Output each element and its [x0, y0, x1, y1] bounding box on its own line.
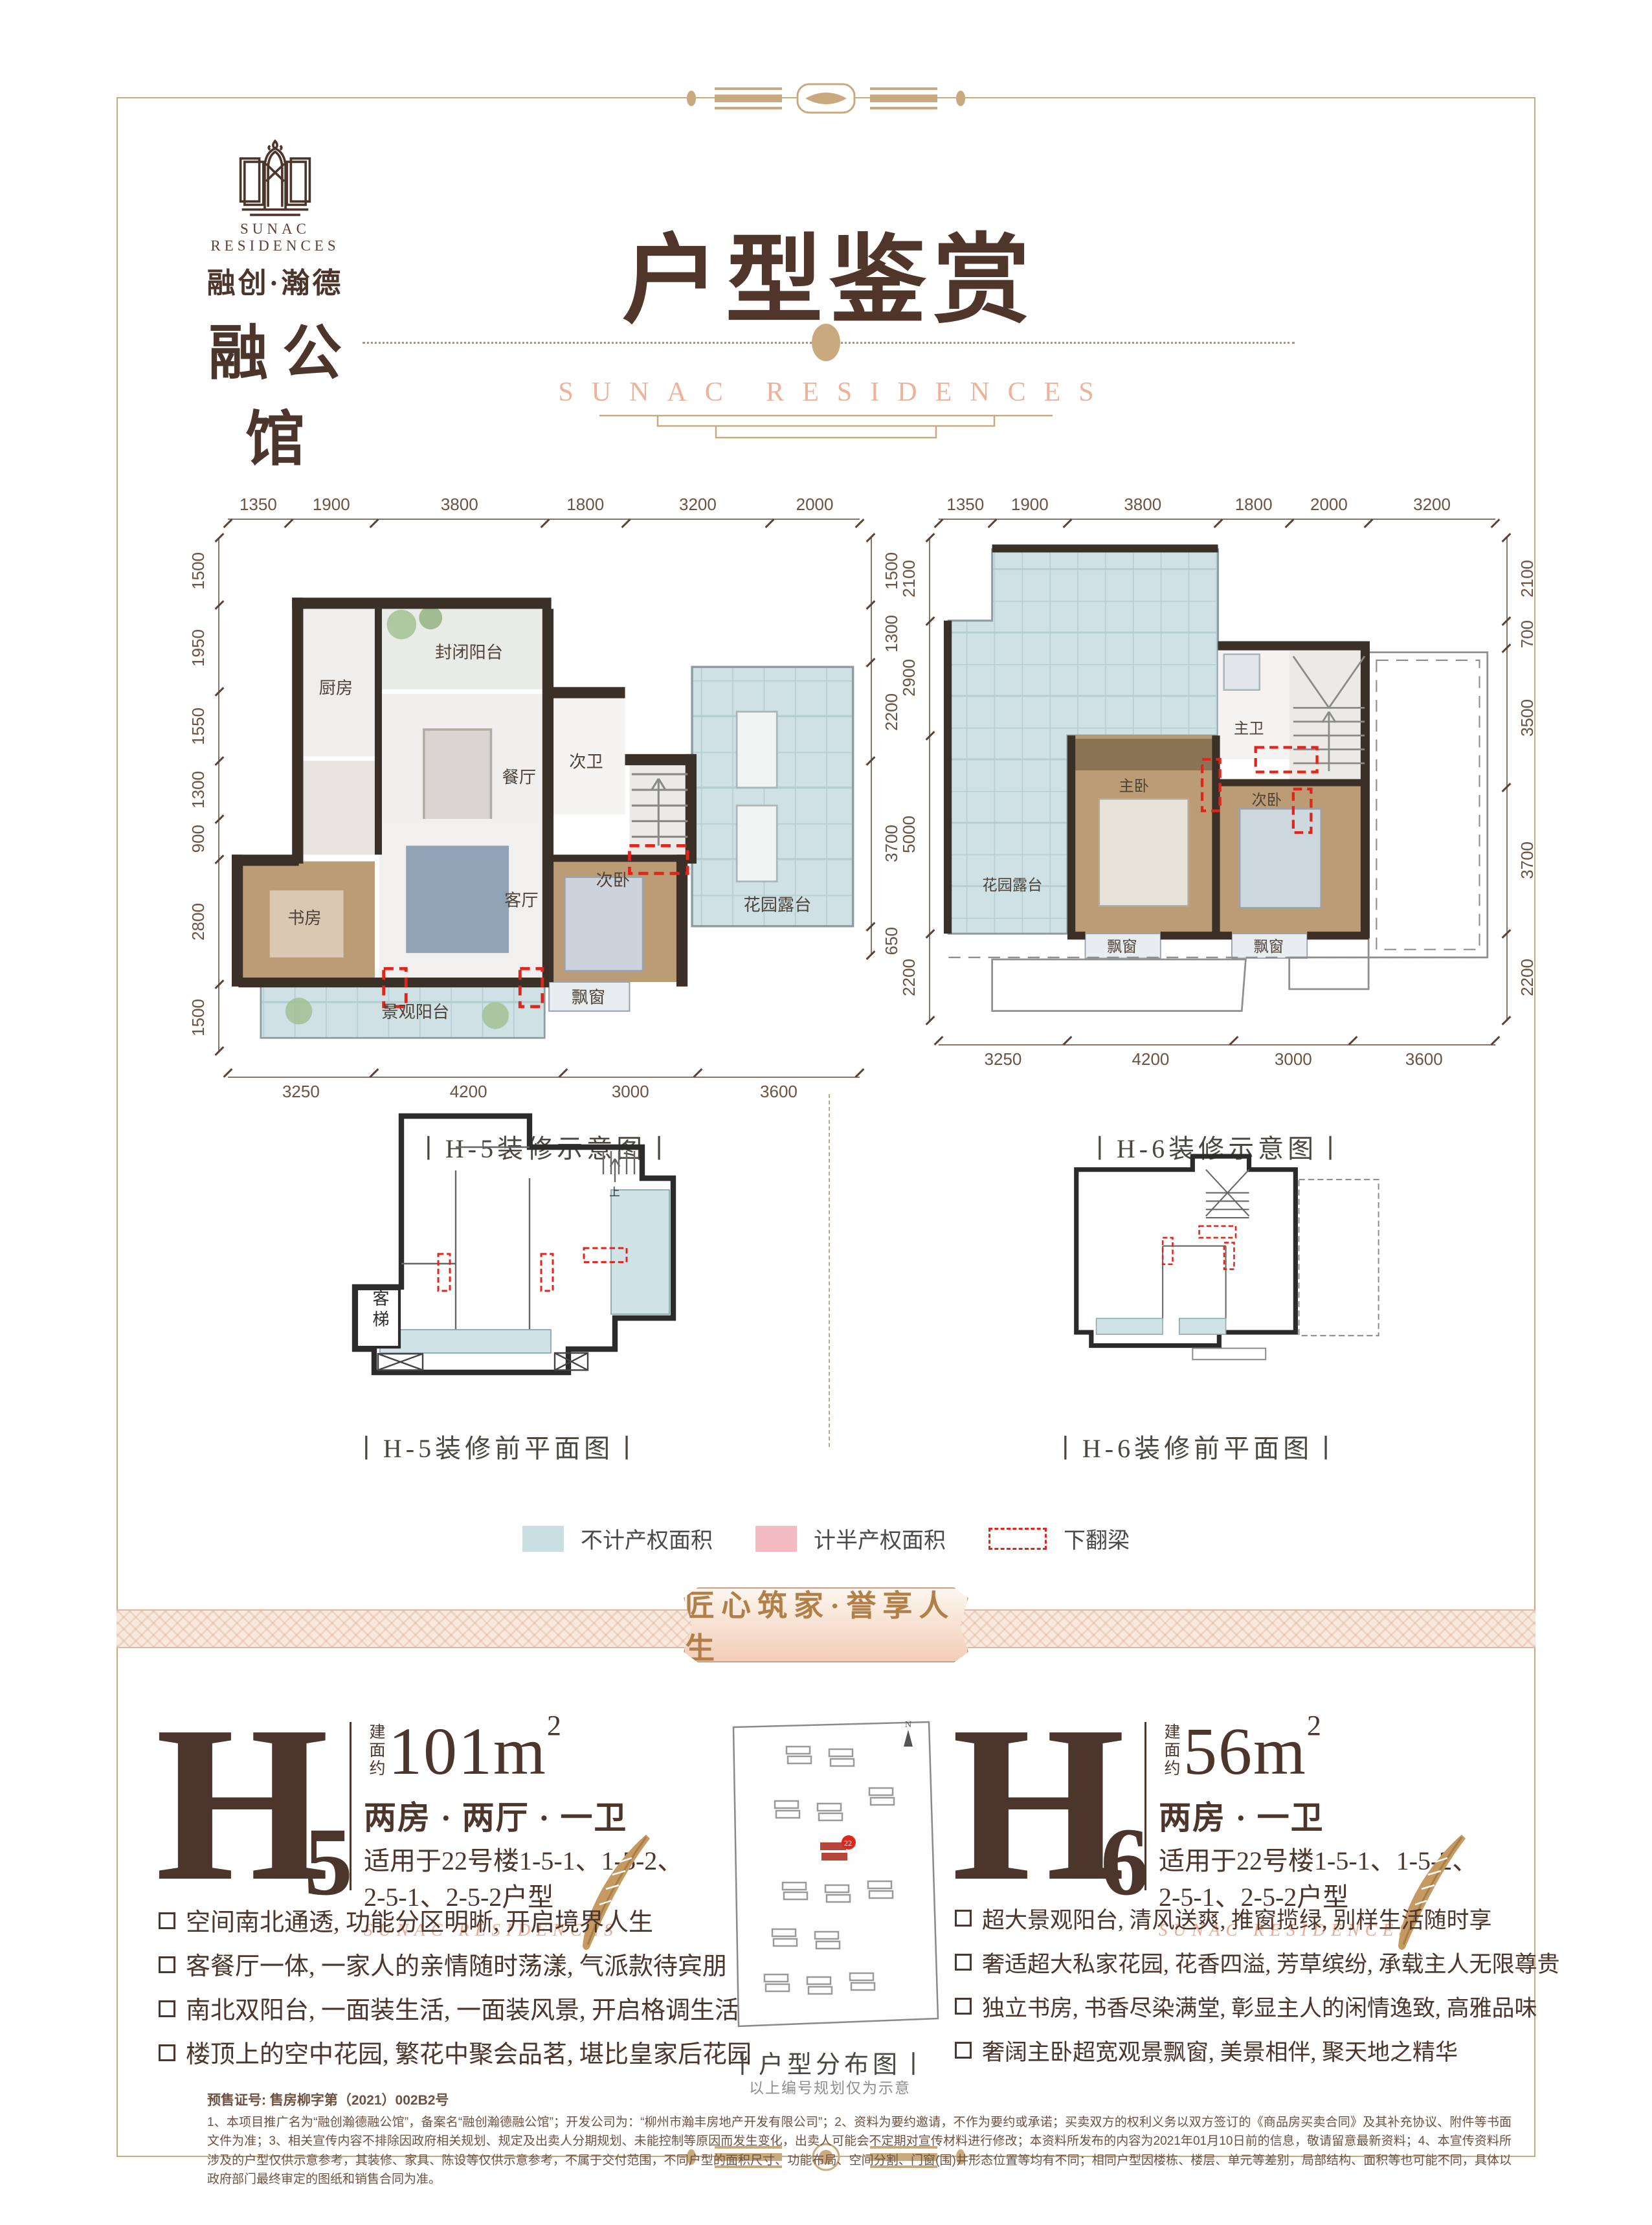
dimension-segment: 900: [189, 819, 229, 859]
h6-pre-floorplan: [1007, 1130, 1389, 1379]
h6-area: 56m2: [1183, 1709, 1323, 1790]
h5-room-study: 书房: [287, 909, 321, 928]
h5-room-kitchen: 厨房: [319, 679, 353, 698]
legend-no-property-label: 不计产权面积: [581, 1523, 713, 1554]
h5-pre-floorplan: 上: [304, 1101, 693, 1384]
dimension-segment: 3000: [563, 1067, 698, 1104]
dimension-segment: 3700: [1497, 787, 1537, 934]
logo-name-en: SUNAC RESIDENCES: [175, 221, 375, 254]
siteplan-caption: 丨户型分布图丨: [730, 2044, 930, 2080]
dimension-segment: 2200: [1497, 934, 1537, 1021]
h5-dims-right: 1500130022003700650: [861, 537, 901, 956]
dimension-segment: 3600: [698, 1067, 860, 1104]
dimension-segment: 2100: [900, 537, 940, 621]
h5-room-terrace: 花园露台: [743, 896, 811, 915]
frame-right: [1534, 97, 1535, 2157]
h6-room-terrace: 花园露台: [982, 877, 1042, 894]
h6-floorplan: 花园露台 主卫 主卧 次卧 飘窗 飘窗: [939, 537, 1495, 1021]
page-subtitle: SUNAC RESIDENCES: [558, 377, 1111, 408]
h6-dims-left: 2100290050002200: [900, 537, 940, 1021]
title-rule-dot: [812, 324, 840, 361]
dimension-segment: 3700: [861, 761, 901, 926]
h5-pre-caption: 丨H-5装修前平面图丨: [353, 1427, 643, 1465]
compass-n: N: [905, 1720, 911, 1730]
banner-plaque: 匠心筑家·誉享人生: [684, 1587, 968, 1662]
h6-feature-2: 奢适超大私家花园, 花香四溢, 芳草缤纷, 承载主人无限尊贵: [955, 1946, 1560, 1979]
dimension-segment: 2200: [861, 662, 901, 761]
h6-dims-right: 2100700350037002200: [1497, 537, 1537, 1021]
dimension-segment: 3500: [1497, 648, 1537, 787]
h6-room-bed2: 次卧: [1252, 792, 1282, 809]
h5-room-bay: 飘窗: [572, 988, 605, 1007]
logo-name-cn: 融公馆: [175, 305, 390, 477]
h5-room-balcony-view: 景观阳台: [381, 1003, 449, 1022]
pre-plan-divider: [829, 1094, 830, 1447]
h5-feature-2: 客餐厅一体, 一家人的亲情随时荡漾, 气派款待宾朋: [159, 1946, 727, 1982]
dimension-segment: 1800: [545, 492, 626, 530]
site-plan: N 22: [715, 1716, 945, 2033]
dimension-segment: 2800: [189, 859, 229, 984]
dimension-segment: 3000: [1234, 1034, 1353, 1072]
h6-divider: [1144, 1722, 1146, 1890]
h6-dims-bottom: 3250420030003600: [939, 1034, 1495, 1072]
h5-room-bath2: 次卫: [569, 753, 603, 772]
h5-pre-elevator-label: 客梯: [368, 1290, 392, 1331]
page-title: 户型鉴赏: [622, 202, 1036, 342]
dimension-segment: 3800: [1067, 492, 1218, 530]
dimension-segment: 4200: [374, 1067, 563, 1104]
dimension-segment: 1300: [189, 761, 229, 819]
h5-feature-4: 楼顶上的空中花园, 繁花中聚会品茗, 堪比皇家后花园: [159, 2034, 752, 2070]
h5-dims-top: 135019003800180032002000: [228, 492, 860, 530]
h6-num: -6: [1068, 1806, 1149, 1918]
legend-beam-swatch: [988, 1528, 1047, 1550]
dimension-segment: 2100: [1497, 537, 1537, 621]
dimension-segment: 1800: [1218, 492, 1289, 530]
h5-num: -5: [272, 1806, 353, 1918]
h5-dims-left: 150019501550130090028001500: [189, 537, 229, 1051]
h5-room-dining: 餐厅: [502, 768, 536, 787]
h6-room-bay1: 飘窗: [1107, 939, 1137, 956]
h5-room-living: 客厅: [504, 891, 538, 910]
legend-beam-label: 下翻梁: [1064, 1523, 1130, 1554]
h5-dims-bottom: 3250420030003600: [228, 1067, 860, 1104]
h6-feature-3: 独立书房, 书香尽染满堂, 彰显主人的闲情逸致, 高雅品味: [955, 1990, 1537, 2023]
legend-half-property-swatch: [755, 1526, 797, 1552]
dimension-segment: 1500: [861, 537, 901, 605]
dimension-segment: 3600: [1353, 1034, 1495, 1072]
dimension-segment: 3250: [939, 1034, 1067, 1072]
h6-dims-top: 135019003800180020003200: [939, 492, 1495, 530]
dimension-segment: 2200: [900, 934, 940, 1021]
h5-area-prefix: 建面约: [364, 1723, 387, 1778]
h5-floorplan: 封闭阳台 厨房 餐厅 次卫 花园露台 书房 客厅 次卧 飘窗 景观阳台: [232, 537, 860, 1051]
h6-feather-icon: [1385, 1832, 1469, 1962]
dimension-segment: 1900: [289, 492, 374, 530]
h6-room-bath-m: 主卫: [1234, 721, 1264, 737]
h6-area-prefix: 建面约: [1159, 1723, 1182, 1778]
dimension-segment: 1500: [189, 984, 229, 1051]
dimension-segment: 1300: [861, 605, 901, 663]
h5-feature-1: 空间南北通透, 功能分区明晰, 开启境界人生: [159, 1902, 653, 1938]
banner-text: 匠心筑家·誉享人生: [685, 1582, 967, 1668]
dimension-segment: 2900: [900, 621, 940, 736]
h6-room-bay2: 飘窗: [1254, 939, 1284, 956]
dimension-segment: 700: [1497, 621, 1537, 649]
dimension-segment: 1950: [189, 605, 229, 692]
h5-divider: [350, 1722, 352, 1890]
dimension-segment: 3200: [626, 492, 770, 530]
building-22-label: 22: [844, 1839, 852, 1848]
h5-area: 101m2: [388, 1709, 563, 1790]
dimension-segment: 650: [861, 926, 901, 956]
legend-half-property-label: 计半产权面积: [814, 1523, 946, 1554]
dimension-segment: 1500: [189, 537, 229, 605]
dimension-segment: 1550: [189, 691, 229, 761]
presale-permit: 预售证号: 售房柳字第（2021）002B2号: [207, 2090, 1512, 2109]
h6-room-bed-m: 主卧: [1119, 778, 1150, 795]
title-bracket-ornament: [599, 413, 1053, 447]
disclaimer-body: 1、本项目推广名为“融创瀚德融公馆”，备案名“融创瀚德融公馆”；开发公司为：“柳…: [207, 2113, 1512, 2189]
h5-room-bed2: 次卧: [596, 871, 630, 890]
dimension-segment: 2000: [1289, 492, 1368, 530]
dimension-segment: 3200: [1368, 492, 1495, 530]
h5-feather-icon: [570, 1832, 654, 1962]
sunac-logo-icon: [230, 139, 320, 221]
dimension-segment: 1350: [939, 492, 992, 530]
logo-brand: 融创·瀚德: [175, 260, 375, 301]
h5-room-balcony-closed: 封闭阳台: [435, 643, 503, 662]
legend: 不计产权面积 计半产权面积 下翻梁: [522, 1523, 1130, 1554]
frame-left: [117, 97, 118, 2157]
top-rule-ornament: [677, 79, 975, 118]
h5-feature-3: 南北双阳台, 一面装生活, 一面装风景, 开启格调生活: [159, 1990, 739, 2026]
h6-layout: 两房 · 一卫: [1159, 1792, 1324, 1839]
dimension-segment: 3250: [228, 1067, 374, 1104]
h6-feature-4: 奢阔主卧超宽观景飘窗, 美景相伴, 聚天地之精华: [955, 2034, 1458, 2067]
logo-block: SUNAC RESIDENCES 融创·瀚德 融公馆: [175, 139, 375, 477]
h5-pre-up-label: 上: [609, 1186, 620, 1198]
dimension-segment: 1900: [992, 492, 1067, 530]
poster-page: SUNAC RESIDENCES 融创·瀚德 融公馆 户型鉴赏 SUNAC RE…: [0, 0, 1652, 2225]
h6-pre-caption: 丨H-6装修前平面图丨: [1053, 1427, 1343, 1465]
disclaimer: 预售证号: 售房柳字第（2021）002B2号 1、本项目推广名为“融创瀚德融公…: [207, 2090, 1512, 2189]
h6-feature-1: 超大景观阳台, 清风送爽, 推窗揽绿, 别样生活随时享: [955, 1902, 1492, 1935]
dimension-segment: 2000: [770, 492, 860, 530]
dimension-segment: 5000: [900, 735, 940, 934]
dimension-segment: 1350: [228, 492, 289, 530]
dimension-segment: 3800: [374, 492, 545, 530]
legend-no-property-swatch: [522, 1526, 564, 1552]
dimension-segment: 4200: [1067, 1034, 1234, 1072]
